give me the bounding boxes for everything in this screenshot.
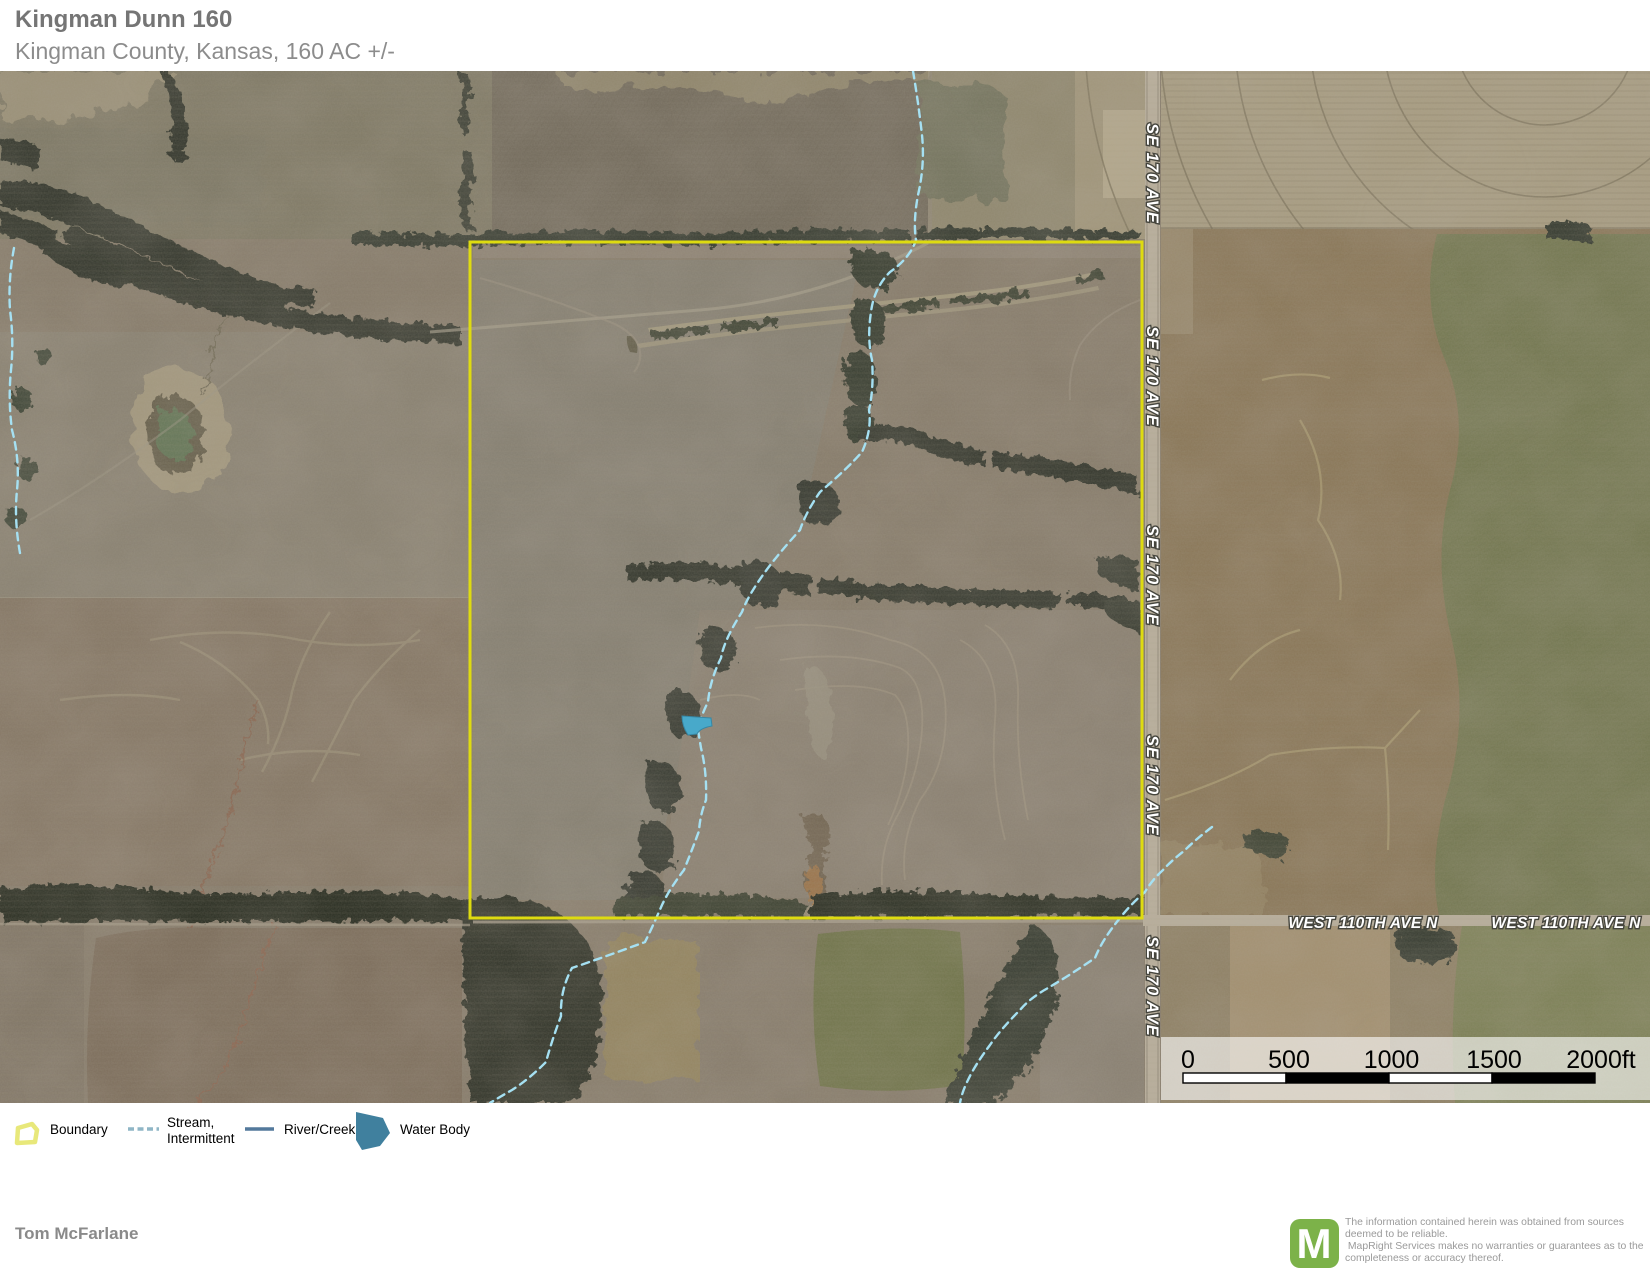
svg-text:2000ft: 2000ft: [1566, 1046, 1636, 1074]
svg-text:River/Creek: River/Creek: [284, 1122, 356, 1137]
svg-text:WEST 110TH AVE N: WEST 110TH AVE N: [1491, 915, 1641, 932]
svg-text:SE 170 AVE: SE 170 AVE: [1143, 525, 1161, 626]
svg-text:0: 0: [1181, 1046, 1195, 1074]
svg-text:Intermittent: Intermittent: [167, 1131, 235, 1146]
svg-text:SE 170 AVE: SE 170 AVE: [1143, 123, 1161, 224]
svg-text:WEST 110TH AVE N: WEST 110TH AVE N: [1288, 915, 1438, 932]
svg-text:1500: 1500: [1466, 1046, 1522, 1074]
svg-text:Water Body: Water Body: [400, 1122, 470, 1137]
svg-text:Boundary: Boundary: [50, 1122, 108, 1137]
svg-text:M: M: [1297, 1220, 1332, 1267]
svg-text:500: 500: [1268, 1046, 1310, 1074]
svg-text:1000: 1000: [1364, 1046, 1420, 1074]
svg-text:SE 170 AVE: SE 170 AVE: [1143, 936, 1161, 1037]
svg-text:Stream,: Stream,: [167, 1115, 214, 1130]
svg-text:SE 170 AVE: SE 170 AVE: [1143, 735, 1161, 836]
svg-text:SE 170 AVE: SE 170 AVE: [1143, 326, 1161, 427]
